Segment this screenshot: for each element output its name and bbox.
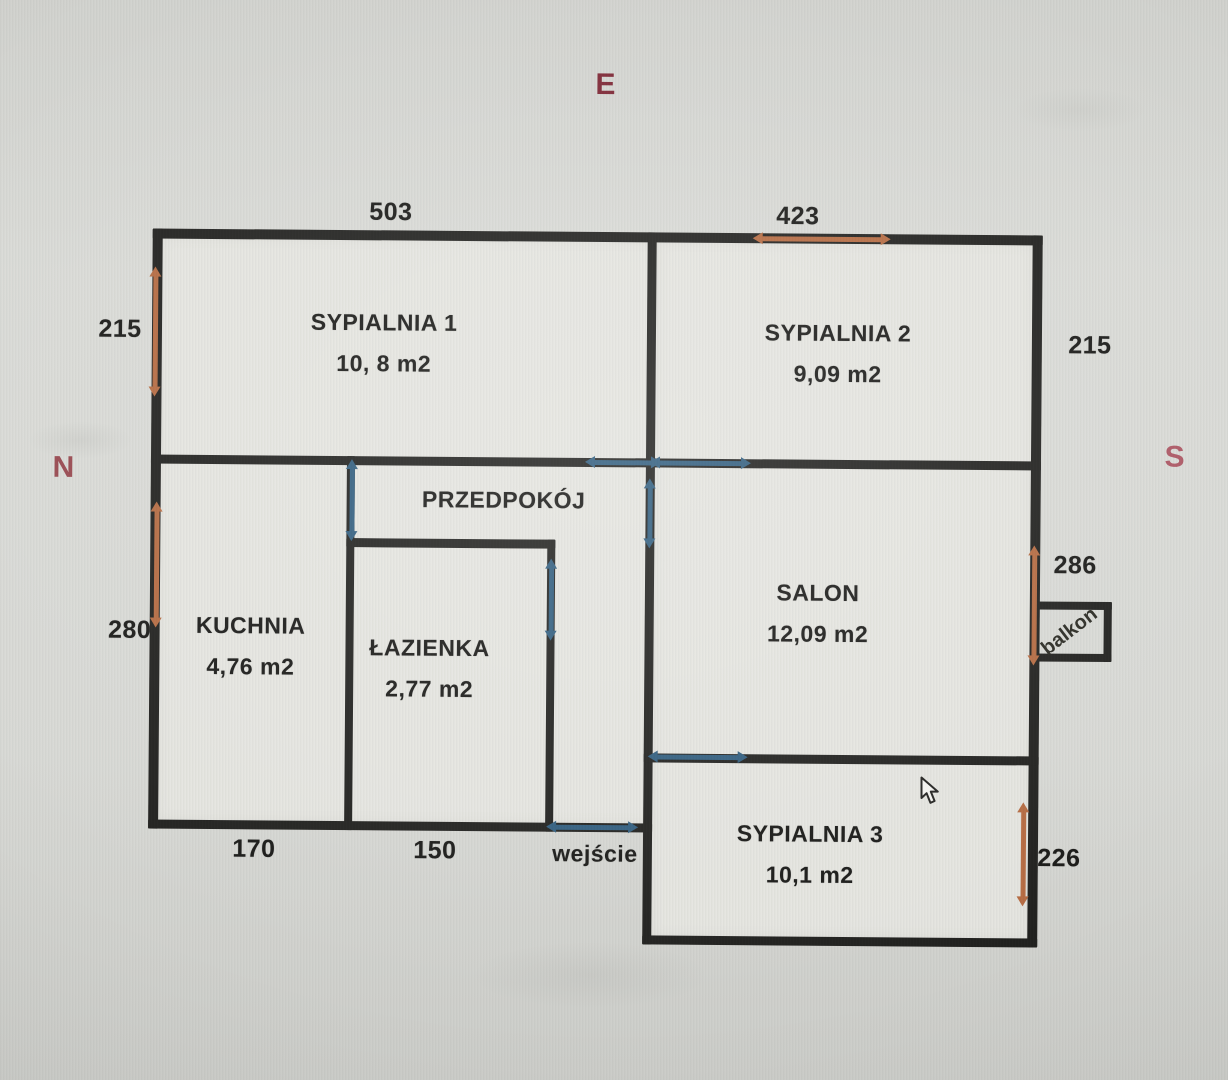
room-name: ŁAZIENKA [369,634,489,661]
wall-bathroom-top [346,538,555,549]
wall-balcony-bottom [1031,653,1111,662]
dimension-label-503: 503 [369,198,412,227]
room-name: SYPIALNIA 3 [737,820,884,847]
dimension-arrow-left-upper [153,276,159,388]
floor-plan: 503 423 215 215 280 286 226 170 150 wejś… [0,0,1228,1080]
door-arrow-bathroom [549,568,555,632]
room-area: 4,76 m2 [195,653,305,681]
room-label-salon: SALON 12,09 m2 [767,579,869,648]
room-area: 2,77 m2 [369,675,489,703]
room-area: 10, 8 m2 [310,350,457,378]
balcony-label: balkon [1037,603,1102,661]
room-label-bathroom: ŁAZIENKA 2,77 m2 [369,634,490,703]
room-label-bedroom2: SYPIALNIA 2 9,09 m2 [764,319,911,388]
room-label-hallway: PRZEDPOKÓJ [422,486,586,514]
compass-east: E [595,68,616,102]
dimension-arrow-top-right [762,236,882,242]
dimension-label-423: 423 [776,202,819,231]
door-arrow-kitchen [349,468,355,532]
room-area: 10,1 m2 [736,861,883,889]
dimension-label-215-right: 215 [1068,331,1111,360]
dimension-label-215-left: 215 [98,315,141,344]
entrance-label: wejście [552,840,638,868]
wall-bedroom1-bedroom2-divider [646,232,657,467]
door-arrow-entrance [555,825,629,831]
compass-north: N [52,451,75,485]
room-label-kitchen: KUCHNIA 4,76 m2 [195,612,305,681]
dimension-arrow-left-lower [154,511,160,619]
door-arrow-bedroom2 [659,460,742,466]
screen-photo: 503 423 215 215 280 286 226 170 150 wejś… [0,0,1228,1080]
door-arrow-bedroom1 [594,460,652,465]
room-area: 9,09 m2 [764,360,911,388]
room-name: KUCHNIA [196,612,306,639]
dimension-label-150: 150 [413,836,456,865]
room-name: PRZEDPOKÓJ [422,486,586,513]
room-area: 12,09 m2 [767,620,868,648]
wall-balcony-top [1032,601,1112,610]
dimension-label-286: 286 [1053,551,1096,580]
room-name: SYPIALNIA 2 [765,319,912,346]
door-arrow-salon [647,487,652,539]
door-arrow-bedroom3 [657,754,739,760]
dimension-label-170: 170 [232,835,275,864]
room-name: SYPIALNIA 1 [311,309,458,336]
room-name: SALON [776,579,859,606]
compass-south: S [1164,440,1185,474]
dimension-label-226: 226 [1037,844,1080,873]
dimension-label-280: 280 [108,616,151,645]
mouse-cursor-icon [920,776,943,806]
wall-bottom-right [642,935,1037,947]
room-label-bedroom1: SYPIALNIA 1 10, 8 m2 [310,309,457,378]
dimension-arrow-bedroom3-right [1021,811,1027,897]
room-label-bedroom3: SYPIALNIA 3 10,1 m2 [736,820,883,889]
